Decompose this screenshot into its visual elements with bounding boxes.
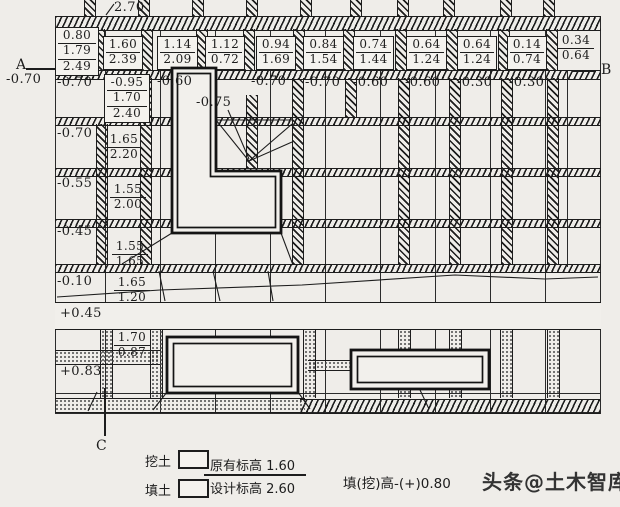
value-box: 1.14 2.09 — [157, 36, 198, 70]
box-value: 1.65 — [114, 276, 150, 291]
box-value: 1.70 — [114, 331, 150, 346]
box-value: 1.54 — [306, 53, 341, 67]
building-rect-2 — [351, 350, 489, 389]
box-value: 0.72 — [208, 53, 242, 67]
hatch-bar-v — [398, 78, 410, 264]
elevation-label: -0.70 — [305, 75, 340, 90]
building-l-outline — [172, 68, 281, 233]
section-line-b — [572, 70, 596, 72]
value-box: 0.64 1.24 — [406, 36, 447, 70]
box-value: 1.14 — [160, 38, 195, 53]
elevation-label: -0.45 — [57, 224, 92, 239]
box-value: 0.94 — [259, 38, 293, 53]
legend-original-elevation: 原有标高 1.60 — [210, 455, 295, 474]
box-value: 1.24 — [409, 53, 444, 67]
box-value: 1.60 — [106, 38, 140, 53]
elevation-label: -0.60 — [157, 74, 192, 89]
fill-strip-band — [55, 302, 601, 330]
earthwork-grid-drawing: 0.80 1.79 2.49 1.60 2.39 1.14 2.09 1.12 … — [0, 0, 620, 507]
box-value: 0.74 — [510, 53, 544, 67]
watermark: 头条@土木智库 — [482, 466, 620, 495]
grid-line-v — [600, 16, 601, 302]
hatch-bar-v — [350, 0, 362, 16]
box-value: 0.87 — [114, 346, 150, 360]
hatch-bar-v — [84, 0, 96, 16]
hatch-band-h — [300, 399, 600, 414]
box-value: 1.24 — [460, 53, 494, 67]
grid-line-v — [600, 328, 601, 413]
value-fraction: 1.55 2.00 — [108, 183, 148, 213]
value-box: 1.12 0.72 — [205, 36, 245, 70]
top-elevation-label: 2.70 — [114, 0, 145, 15]
hatch-bar-v — [246, 0, 258, 16]
box-value: 0.64 — [558, 49, 594, 63]
value-box: 0.64 1.24 — [457, 36, 497, 70]
marker-a-label: A — [16, 57, 26, 73]
box-value: 1.65 — [106, 133, 142, 148]
box-value: 2.40 — [107, 107, 147, 121]
elevation-label: -0.30 — [509, 75, 544, 90]
hatch-band-h — [55, 16, 601, 31]
marker-a-elevation: -0.70 — [6, 72, 41, 87]
box-value: 0.80 — [58, 29, 96, 44]
elevation-label: -0.75 — [196, 95, 231, 110]
grid-line-h — [55, 393, 601, 394]
value-box: 0.94 1.69 — [256, 36, 296, 70]
stipple-bar-v — [398, 330, 411, 398]
value-fraction: 1.65 2.20 — [104, 133, 144, 163]
value-fraction: 1.55 1.65 — [110, 240, 150, 270]
box-value: 1.55 — [112, 240, 148, 255]
box-value: 1.69 — [259, 53, 293, 67]
box-value: 2.09 — [160, 53, 195, 67]
hatch-bar-v — [192, 0, 204, 16]
hatch-band-h — [55, 168, 601, 177]
box-value: 2.49 — [58, 60, 96, 74]
stipple-bar-v — [500, 330, 513, 398]
box-value: 0.64 — [460, 38, 494, 53]
stipple-bar-v — [449, 330, 462, 398]
box-value: 0.74 — [356, 38, 391, 53]
value-box: 0.14 0.74 — [507, 36, 547, 70]
hatch-bar-v — [501, 78, 513, 264]
elevation-label: -0.60 — [353, 75, 388, 90]
legend-fraction-line — [204, 474, 306, 476]
box-value: 1.44 — [356, 53, 391, 67]
marker-b-label: B — [601, 62, 611, 78]
box-value: 0.14 — [510, 38, 544, 53]
value-box: -0.95 1.70 2.40 — [104, 74, 150, 123]
box-value: 1.12 — [208, 38, 242, 53]
legend-cut-label: 挖土 — [145, 451, 171, 470]
stipple-band-h — [308, 360, 350, 371]
hatch-bar-v — [449, 78, 461, 264]
hatch-bar-v — [500, 0, 512, 16]
box-value: -0.95 — [107, 76, 147, 91]
elevation-label: -0.60 — [405, 75, 440, 90]
value-box: 1.60 2.39 — [103, 36, 143, 70]
section-line-a — [26, 68, 55, 70]
hatch-band-h — [55, 219, 601, 228]
elevation-label: -0.70 — [57, 126, 92, 141]
value-fraction: 1.65 1.20 — [112, 276, 152, 306]
value-fraction: 1.70 0.87 — [112, 331, 152, 361]
value-box: 0.74 1.44 — [353, 36, 394, 70]
elevation-label: +0.45 — [60, 306, 102, 321]
marker-c-label: C — [96, 438, 107, 454]
hatch-bar-v — [547, 78, 559, 264]
legend-cut-swatch — [178, 450, 209, 469]
hatch-bar-v — [292, 78, 304, 264]
building-rect-1 — [167, 337, 298, 393]
legend-fill-swatch — [178, 479, 209, 498]
box-value: 1.55 — [110, 183, 146, 198]
box-value: 0.34 — [558, 34, 594, 49]
box-value: 1.20 — [114, 291, 150, 305]
box-value: 2.00 — [110, 198, 146, 212]
legend-formula: 填(挖)高-(+)0.80 — [343, 472, 451, 492]
legend-design-elevation: 设计标高 2.60 — [210, 478, 295, 497]
section-line-c — [104, 388, 106, 436]
elevation-label: -0.70 — [251, 74, 286, 89]
box-value: 2.20 — [106, 148, 142, 162]
box-value: 1.79 — [58, 44, 96, 59]
hatch-bar-v — [543, 0, 555, 16]
value-box: 0.80 1.79 2.49 — [55, 27, 99, 76]
stipple-bar-v — [547, 330, 560, 398]
value-fraction: 0.34 0.64 — [556, 34, 596, 64]
box-value: 1.70 — [107, 91, 147, 106]
elevation-label: -0.55 — [57, 176, 92, 191]
box-value: 0.84 — [306, 38, 341, 53]
elevation-label: +0.83 — [60, 364, 102, 379]
hatch-bar-v — [397, 0, 409, 16]
box-value: 1.65 — [112, 255, 148, 269]
box-value: 0.64 — [409, 38, 444, 53]
value-box: 0.84 1.54 — [303, 36, 344, 70]
hatch-bar-v — [300, 0, 312, 16]
elevation-label: -0.30 — [457, 75, 492, 90]
hatch-bar-v — [246, 95, 258, 168]
elevation-label: -0.70 — [57, 75, 92, 90]
legend-fill-label: 填土 — [145, 480, 171, 499]
stipple-band-h — [55, 398, 305, 413]
hatch-bar-v — [443, 0, 455, 16]
box-value: 2.39 — [106, 53, 140, 67]
elevation-label: -0.10 — [57, 274, 92, 289]
